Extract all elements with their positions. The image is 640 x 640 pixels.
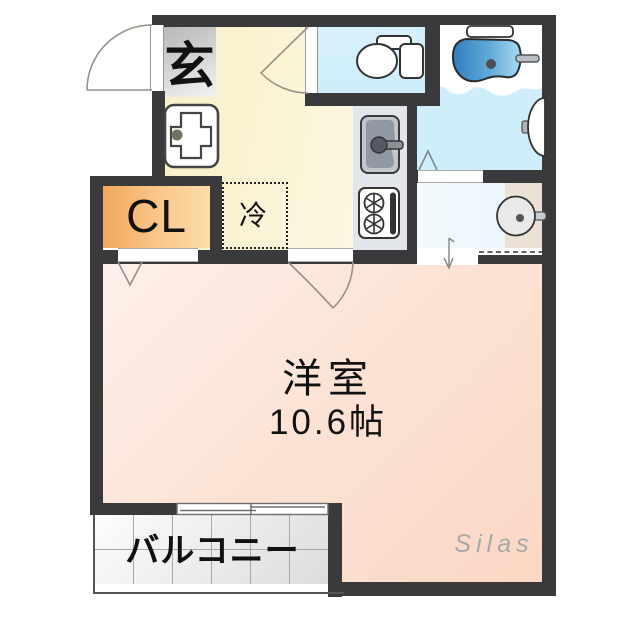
bathroom-sink-icon (522, 98, 545, 156)
entrance-label: 玄 (163, 27, 216, 97)
kitchen-sink-icon (361, 116, 403, 173)
bathtub-icon (440, 25, 542, 96)
toilet-icon (357, 36, 423, 78)
room-size-label: 10.6帖 (228, 398, 428, 440)
balcony-label: バルコニー (100, 526, 325, 568)
refrigerator-label: 冷 (222, 183, 284, 245)
entry-door-icon (87, 25, 152, 90)
floorplan: 玄 CL 冷 洋室 10.6帖 バルコニー Silas (0, 0, 640, 640)
bath-door-icon (419, 151, 437, 170)
watermark: Silas (444, 528, 544, 560)
closet-label: CL (103, 183, 210, 248)
vanity-sink-icon (497, 197, 546, 236)
sliding-window-icon (177, 504, 328, 515)
gas-stove-icon (359, 188, 399, 238)
closet-door-icon (118, 262, 142, 285)
washing-machine-icon (165, 105, 218, 167)
toilet-door-icon (261, 27, 308, 93)
room-name-label: 洋室 (228, 352, 428, 398)
powder-door-arrow-icon (444, 238, 454, 268)
room-door-icon (288, 262, 353, 308)
